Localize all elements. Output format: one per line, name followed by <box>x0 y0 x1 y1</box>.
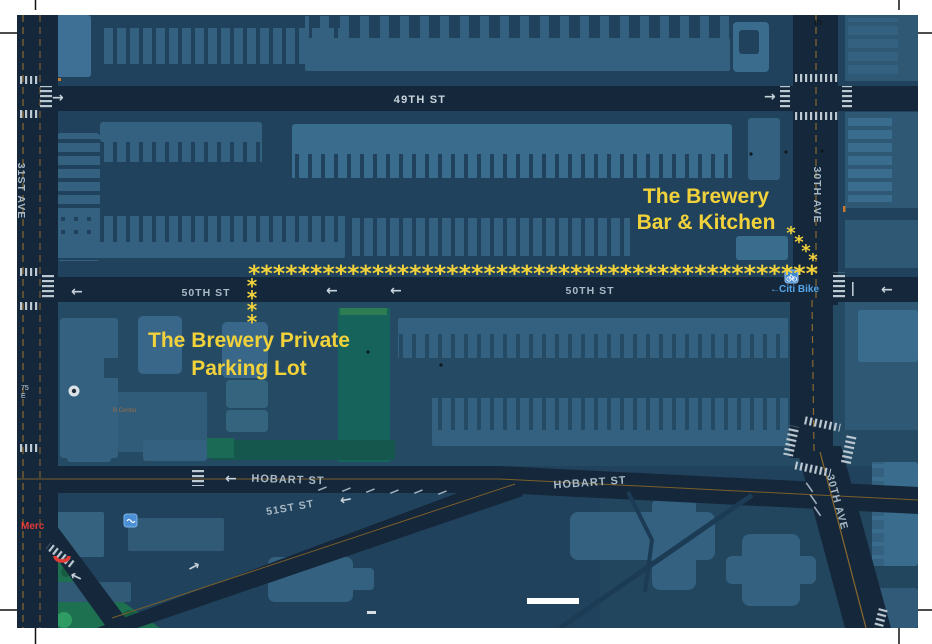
address-label-2: E <box>21 393 26 400</box>
map-canvas: → → ← ← ← ← ← ← ← → <box>0 0 932 644</box>
street-label-30th-ave-north: 30TH AVE <box>811 166 823 223</box>
scale-tick <box>367 611 376 614</box>
lane-arrow-left: ← <box>881 282 893 298</box>
parking-annotation-line2: Parking Lot <box>191 357 307 380</box>
small-poi-label: B Center <box>113 408 137 414</box>
route-trail-horizontal: ****************************************… <box>248 262 819 287</box>
street-label-hobart-west: HOBART ST <box>251 473 325 488</box>
merchant-label: Merc <box>21 521 45 532</box>
subway-entrance-icon: m <box>814 17 822 27</box>
destination-annotation-line2: Bar & Kitchen <box>637 211 776 234</box>
lane-arrow-left: ← <box>225 471 237 487</box>
destination-annotation-line1: The Brewery <box>643 185 769 208</box>
route-trail-star: * <box>808 250 818 271</box>
lane-arrow-right: → <box>52 90 64 106</box>
lane-arrow-right: → <box>764 89 776 105</box>
parking-annotation-line1: The Brewery Private <box>148 329 350 352</box>
address-label: 75 <box>21 385 29 392</box>
lane-arrow-left: ← <box>71 284 83 300</box>
scale-bar <box>527 598 579 604</box>
street-label-50th-west: 50TH ST <box>181 287 230 299</box>
street-label-49th: 49TH ST <box>394 94 446 106</box>
map-page: → → ← ← ← ← ← ← ← → <box>0 0 932 644</box>
shop-icon <box>124 514 137 527</box>
